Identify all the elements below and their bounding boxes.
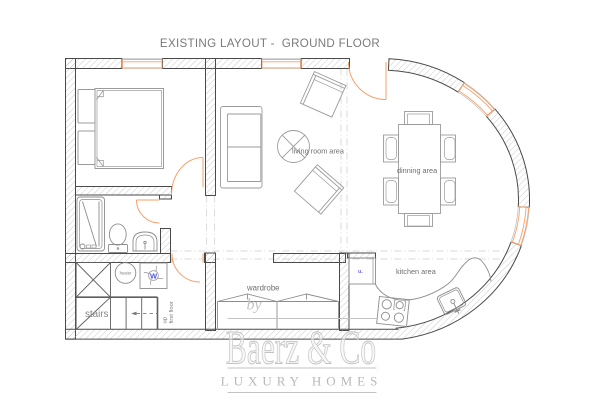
- svg-text:EXISTING LAYOUT - GROUND FLOO: EXISTING LAYOUT - GROUND FLOOR: [160, 37, 380, 50]
- svg-text:up: up: [163, 317, 169, 323]
- svg-text:LUXURY HOMES: LUXURY HOMES: [221, 374, 383, 389]
- svg-text:stairs: stairs: [85, 309, 109, 320]
- svg-text:living room area: living room area: [292, 147, 345, 156]
- svg-text:wardrobe: wardrobe: [246, 284, 280, 293]
- svg-text:by: by: [247, 297, 263, 314]
- svg-text:first floor: first floor: [169, 301, 175, 323]
- svg-text:kitchen area: kitchen area: [396, 267, 437, 276]
- svg-text:dinning area: dinning area: [397, 166, 438, 175]
- svg-text:u.: u.: [358, 269, 363, 275]
- svg-text:heater: heater: [120, 271, 132, 276]
- svg-text:Baerz & Co: Baerz & Co: [226, 321, 376, 374]
